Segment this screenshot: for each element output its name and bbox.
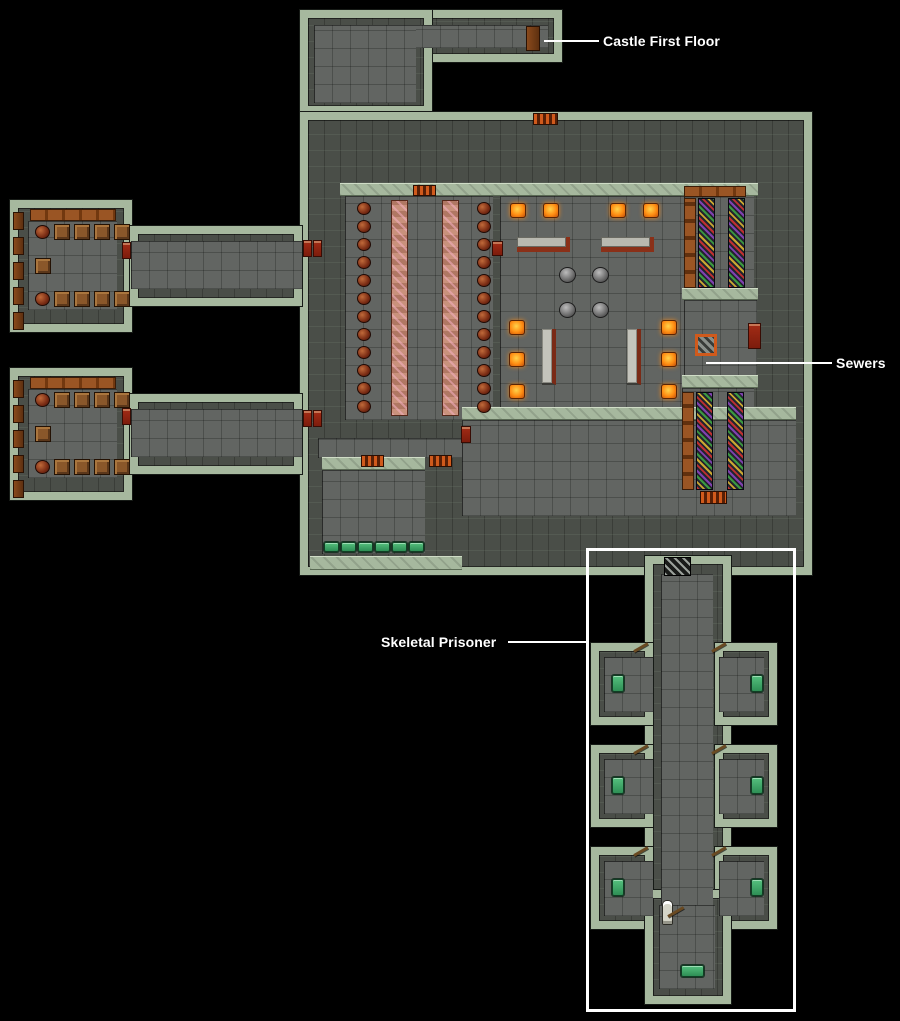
door	[13, 312, 24, 330]
barrel	[35, 460, 50, 474]
brazier	[510, 203, 526, 218]
brazier	[509, 384, 525, 399]
annotation-label: Sewers	[836, 355, 886, 371]
castle-stairs-door	[526, 26, 540, 51]
bench	[517, 237, 570, 252]
barrel	[477, 364, 491, 377]
shelf-v	[682, 392, 694, 490]
west-corridor-upper-floor	[131, 241, 302, 289]
barrel	[357, 256, 371, 269]
crate	[94, 459, 110, 475]
banner	[492, 241, 503, 256]
barracks-south-wall-top	[310, 556, 462, 570]
barrel	[477, 202, 491, 215]
door	[13, 287, 24, 305]
crate	[74, 224, 90, 240]
brazier	[661, 384, 677, 399]
cauldron	[559, 302, 576, 318]
cauldron	[559, 267, 576, 283]
door	[13, 480, 24, 498]
door	[13, 380, 24, 398]
brazier	[610, 203, 626, 218]
annotation-line	[508, 641, 586, 643]
crate	[74, 392, 90, 408]
sewer-hatch	[695, 334, 717, 356]
barrel	[357, 328, 371, 341]
crate	[54, 224, 70, 240]
armory-upper-south-wall-top	[682, 288, 758, 300]
crate	[94, 224, 110, 240]
door	[13, 455, 24, 473]
door	[13, 430, 24, 448]
grate-red	[700, 491, 727, 504]
banner	[461, 426, 471, 443]
banner	[122, 408, 131, 425]
top-connector-floor	[314, 25, 416, 103]
annotation-label: Skeletal Prisoner	[381, 634, 496, 650]
barrel	[477, 400, 491, 413]
skeletal-prisoner-outline-box	[586, 548, 796, 1012]
barrel	[477, 382, 491, 395]
shelf-h	[30, 209, 116, 221]
crate	[114, 291, 130, 307]
annotation-line	[544, 40, 599, 42]
bed-h	[341, 542, 356, 552]
west-corridor-lower-floor	[131, 409, 302, 457]
brazier	[509, 352, 525, 367]
barrel	[477, 292, 491, 305]
banner	[313, 410, 322, 427]
barrel	[357, 382, 371, 395]
barrel	[357, 202, 371, 215]
door	[13, 405, 24, 423]
rack	[728, 198, 745, 288]
cauldron	[592, 302, 609, 318]
crate	[94, 392, 110, 408]
crate	[74, 459, 90, 475]
crate	[54, 291, 70, 307]
rack	[696, 392, 713, 490]
barrel	[357, 238, 371, 251]
barrel	[477, 238, 491, 251]
crate	[114, 224, 130, 240]
crate	[54, 459, 70, 475]
door	[13, 262, 24, 280]
crate	[74, 291, 90, 307]
barrel	[357, 310, 371, 323]
brazier	[661, 352, 677, 367]
banner	[748, 323, 761, 349]
door	[13, 212, 24, 230]
cauldron	[592, 267, 609, 283]
grate-red	[361, 455, 384, 467]
barrel	[357, 364, 371, 377]
bench	[601, 237, 654, 252]
south-hall-north-wall-top	[462, 407, 796, 420]
bed-h	[409, 542, 424, 552]
barrel	[477, 256, 491, 269]
brazier	[643, 203, 659, 218]
crate	[35, 426, 51, 442]
shelf-h	[684, 186, 746, 197]
table	[442, 200, 459, 416]
barrel	[35, 225, 50, 239]
barrel	[35, 393, 50, 407]
barrel	[357, 292, 371, 305]
bed-h	[375, 542, 390, 552]
brazier	[509, 320, 525, 335]
bed-h	[324, 542, 339, 552]
grate-red	[413, 185, 436, 196]
banner	[303, 410, 312, 427]
barrel	[357, 400, 371, 413]
crate	[114, 459, 130, 475]
shelf-h	[30, 377, 116, 389]
rack	[727, 392, 744, 490]
annotation-line	[706, 362, 832, 364]
brazier	[543, 203, 559, 218]
annotation-label: Castle First Floor	[603, 33, 720, 49]
altar	[627, 329, 641, 385]
grate-red	[533, 113, 558, 125]
crate	[114, 392, 130, 408]
barrel	[477, 328, 491, 341]
barrel	[357, 274, 371, 287]
crate	[94, 291, 110, 307]
barrel	[477, 346, 491, 359]
barrel	[477, 274, 491, 287]
banner	[303, 240, 312, 257]
south-hall	[462, 420, 796, 516]
rack	[698, 198, 715, 288]
banner	[313, 240, 322, 257]
brazier	[661, 320, 677, 335]
crate	[54, 392, 70, 408]
crate	[35, 258, 51, 274]
bed-h	[392, 542, 407, 552]
banner	[122, 242, 131, 259]
barrel	[357, 346, 371, 359]
door	[13, 237, 24, 255]
barrel	[357, 220, 371, 233]
table	[391, 200, 408, 416]
dungeon-map-screenshot: Castle First Floor Sewers Skeletal Priso…	[0, 0, 900, 1021]
armory-lower-north-wall-top	[682, 375, 758, 388]
altar	[542, 329, 556, 385]
bed-h	[358, 542, 373, 552]
barrel	[477, 220, 491, 233]
grate-red	[429, 455, 452, 467]
barrel	[35, 292, 50, 306]
shelf-v	[684, 198, 696, 288]
barrel	[477, 310, 491, 323]
